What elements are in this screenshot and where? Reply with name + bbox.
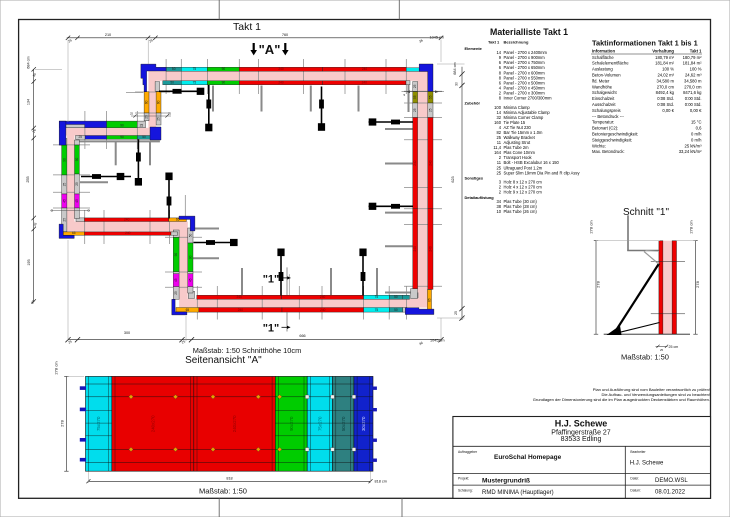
svg-text:--- Betondruck ---: --- Betondruck ---: [592, 114, 624, 119]
svg-text:25: 25: [168, 112, 171, 116]
svg-text:Taktinformationen Takt 1 bis: Taktinformationen Takt 1 bis 1: [592, 39, 698, 48]
svg-text:270,0 cm: 270,0 cm: [684, 84, 702, 89]
svg-text:278 cm: 278 cm: [589, 220, 594, 234]
svg-text:Takt 1: Takt 1: [690, 49, 702, 54]
svg-text:270,0 cm: 270,0 cm: [657, 84, 675, 89]
svg-text:50: 50: [394, 308, 398, 312]
svg-text:240: 240: [320, 295, 326, 299]
svg-text:Max. Betondruck:: Max. Betondruck:: [592, 149, 625, 154]
svg-text:90: 90: [222, 81, 226, 85]
svg-text:278 cm: 278 cm: [688, 220, 693, 234]
svg-text:45: 45: [75, 199, 79, 203]
svg-text:Schalgewicht: Schalgewicht: [592, 90, 618, 95]
svg-text:0,00 €: 0,00 €: [662, 108, 674, 113]
svg-text:0:08 Std.: 0:08 Std.: [657, 102, 674, 107]
svg-text:181,84 m²: 181,84 m²: [683, 61, 702, 66]
svg-text:33,24 kN/m²: 33,24 kN/m²: [679, 149, 702, 154]
svg-text:180,79 m²: 180,79 m²: [655, 55, 674, 60]
svg-text:50: 50: [170, 81, 174, 85]
svg-text:Bearbeiter: Bearbeiter: [630, 450, 646, 454]
svg-text:25: 25: [413, 108, 417, 112]
svg-text:Holz 9 x 12 x 270 cm: Holz 9 x 12 x 270 cm: [504, 190, 543, 195]
svg-text:0:00 Std.: 0:00 Std.: [685, 102, 702, 107]
svg-text:240: 240: [237, 295, 243, 299]
svg-text:818 cm: 818 cm: [375, 480, 387, 484]
svg-text:210: 210: [105, 33, 111, 37]
svg-text:25: 25: [130, 112, 133, 116]
svg-text:25: 25: [428, 108, 432, 112]
svg-text:240: 240: [413, 246, 417, 252]
svg-text:50x270: 50x270: [341, 416, 346, 431]
svg-text:278: 278: [60, 419, 65, 426]
svg-text:H.J. Schewe: H.J. Schewe: [555, 419, 608, 429]
svg-text:623: 623: [451, 176, 455, 182]
svg-text:60: 60: [145, 100, 149, 104]
svg-text:90: 90: [62, 158, 66, 162]
svg-text:278: 278: [695, 280, 700, 287]
svg-text:90x270: 90x270: [289, 416, 294, 431]
svg-text:Inner Corner 2700/300mm: Inner Corner 2700/300mm: [504, 96, 553, 101]
svg-text:1045 cm: 1045 cm: [430, 35, 445, 39]
svg-text:240: 240: [428, 160, 432, 166]
svg-text:60: 60: [157, 100, 161, 104]
svg-text:25: 25: [75, 182, 79, 186]
svg-text:1045 cm: 1045 cm: [430, 338, 445, 342]
svg-text:90: 90: [188, 255, 192, 259]
svg-text:25: 25: [660, 348, 664, 352]
svg-text:255: 255: [26, 176, 30, 182]
svg-text:75: 75: [375, 308, 379, 312]
svg-text:100 %: 100 %: [690, 67, 702, 72]
svg-text:278: 278: [596, 280, 601, 287]
svg-text:25: 25: [140, 124, 144, 128]
svg-text:240: 240: [362, 67, 368, 71]
svg-text:Maßstab: 1:50 Schnitthöhe 10: Maßstab: 1:50 Schnitthöhe 10cm: [193, 346, 301, 355]
svg-text:24,02 m³: 24,02 m³: [657, 73, 674, 78]
svg-text:Elemente: Elemente: [465, 46, 483, 51]
svg-text:0,6: 0,6: [696, 126, 702, 131]
svg-text:Vorhaltung: Vorhaltung: [652, 49, 674, 54]
svg-text:Wichte:: Wichte:: [592, 143, 606, 148]
svg-text:240: 240: [413, 160, 417, 166]
svg-text:Schnitt "1": Schnitt "1": [623, 207, 669, 218]
svg-text:45: 45: [174, 278, 178, 282]
svg-text:0:00 Std.: 0:00 Std.: [685, 96, 702, 101]
svg-text:"A": "A": [259, 42, 281, 57]
svg-text:50: 50: [172, 67, 176, 71]
svg-text:684 cm: 684 cm: [27, 56, 31, 68]
svg-text:134: 134: [27, 99, 31, 105]
svg-text:30: 30: [455, 82, 459, 86]
svg-text:75x270: 75x270: [96, 416, 101, 431]
svg-text:240: 240: [428, 246, 432, 252]
svg-text:Auslastung: Auslastung: [592, 67, 613, 72]
svg-text:181,84 m²: 181,84 m²: [655, 61, 674, 66]
svg-text:25 cm: 25 cm: [669, 345, 679, 349]
svg-text:25: 25: [62, 183, 66, 187]
svg-text:90: 90: [120, 124, 124, 128]
svg-text:818: 818: [226, 477, 232, 481]
svg-text:0,00 €: 0,00 €: [690, 108, 702, 113]
svg-text:25: 25: [454, 311, 458, 315]
svg-text:Datum:: Datum:: [630, 488, 641, 492]
svg-text:25: 25: [79, 135, 83, 139]
svg-text:90: 90: [174, 253, 178, 257]
svg-text:75: 75: [375, 295, 379, 299]
svg-text:55: 55: [413, 95, 417, 99]
svg-text:25: 25: [413, 84, 417, 88]
svg-text:15 °C: 15 °C: [691, 120, 702, 125]
svg-text:Grundlagen der Dimensionierung: Grundlagen der Dimensionierung sind die …: [533, 397, 710, 402]
svg-text:Temperatur:: Temperatur:: [592, 120, 614, 125]
svg-text:760: 760: [282, 33, 288, 37]
svg-text:Datei:: Datei:: [630, 477, 639, 481]
svg-text:0 m/h: 0 m/h: [691, 132, 702, 137]
svg-text:Wandhöhe: Wandhöhe: [592, 84, 613, 89]
svg-text:50: 50: [188, 234, 192, 238]
svg-text:DEMO.WSL: DEMO.WSL: [655, 478, 688, 484]
svg-text:Ausschalzeit: Ausschalzeit: [592, 102, 616, 107]
svg-text:lfd. Meter: lfd. Meter: [592, 78, 610, 83]
svg-text:Schalungspreis: Schalungspreis: [592, 108, 621, 113]
svg-text:0:08 Std.: 0:08 Std.: [657, 96, 674, 101]
svg-text:RMD MINIMA (Hauptlager): RMD MINIMA (Hauptlager): [482, 490, 554, 496]
svg-text:90: 90: [120, 135, 124, 139]
svg-text:240: 240: [362, 81, 368, 85]
svg-text:34,580 m: 34,580 m: [657, 78, 675, 83]
svg-text:Maßstab: 1:50: Maßstab: 1:50: [199, 487, 247, 496]
svg-text:240x270: 240x270: [232, 415, 237, 432]
svg-text:25: 25: [62, 218, 66, 222]
svg-text:08.01.2022: 08.01.2022: [655, 490, 686, 496]
svg-text:Einschalzeit: Einschalzeit: [592, 96, 615, 101]
svg-text:Projekt:: Projekt:: [458, 477, 469, 481]
svg-text:65: 65: [72, 231, 76, 235]
svg-text:25 kN/m³: 25 kN/m³: [685, 143, 703, 148]
svg-text:240: 240: [124, 217, 130, 221]
svg-text:100 %: 100 %: [662, 67, 674, 72]
svg-text:Auftraggeber: Auftraggeber: [458, 450, 478, 454]
svg-text:8471,6 kg: 8471,6 kg: [683, 90, 702, 95]
svg-text:"1": "1": [263, 274, 280, 286]
svg-text:45: 45: [62, 199, 66, 203]
svg-text:300: 300: [124, 331, 130, 335]
svg-text:50: 50: [394, 295, 398, 299]
svg-text:8492,4 kg: 8492,4 kg: [656, 90, 675, 95]
svg-text:Super Slim 19mm Dia Pin and R: Super Slim 19mm Dia Pin and R clip Assy: [504, 170, 581, 175]
svg-text:666: 666: [299, 334, 305, 338]
svg-text:55: 55: [428, 95, 432, 99]
svg-text:Betoniergeschwindigkeit:: Betoniergeschwindigkeit:: [592, 132, 638, 137]
svg-text:50: 50: [142, 135, 146, 139]
svg-text:684 cm: 684 cm: [453, 62, 457, 74]
svg-text:0 m/h: 0 m/h: [691, 137, 702, 142]
svg-text:25: 25: [174, 291, 178, 295]
svg-text:Bezeichnung: Bezeichnung: [504, 40, 529, 45]
svg-text:Plas Tube (26 cm): Plas Tube (26 cm): [504, 209, 538, 214]
svg-text:Materialliste Takt 1: Materialliste Takt 1: [490, 27, 568, 37]
svg-text:75: 75: [193, 81, 197, 85]
svg-text:240: 240: [320, 308, 326, 312]
svg-text:Takt 1: Takt 1: [233, 21, 261, 33]
svg-text:240: 240: [278, 67, 284, 71]
svg-text:90: 90: [222, 67, 226, 71]
svg-text:90: 90: [75, 158, 79, 162]
svg-text:Beton-Volumen: Beton-Volumen: [592, 73, 621, 78]
svg-text:240x270: 240x270: [150, 415, 155, 432]
svg-text:180,79 m²: 180,79 m²: [683, 55, 702, 60]
svg-text:"1": "1": [263, 323, 280, 335]
svg-text:Mustergrundriß: Mustergrundriß: [482, 477, 530, 484]
svg-text:Steiggeschwindigkeit:: Steiggeschwindigkeit:: [592, 137, 632, 142]
svg-text:25: 25: [157, 117, 161, 121]
svg-text:EuroSchal Homepage: EuroSchal Homepage: [494, 454, 562, 461]
svg-text:Takt 1: Takt 1: [488, 40, 500, 45]
svg-text:240: 240: [278, 81, 284, 85]
svg-text:34,580 m: 34,580 m: [684, 78, 702, 83]
svg-text:H.J. Schewe: H.J. Schewe: [630, 461, 664, 467]
svg-text:75x270: 75x270: [317, 416, 322, 431]
svg-text:10: 10: [496, 209, 501, 214]
svg-text:Zubehör: Zubehör: [465, 101, 481, 106]
svg-text:30x270: 30x270: [361, 416, 366, 431]
svg-text:195: 195: [27, 259, 31, 265]
svg-text:Information: Information: [592, 49, 615, 54]
svg-text:83533 Edling: 83533 Edling: [561, 436, 602, 443]
svg-text:25: 25: [145, 115, 149, 119]
svg-text:65: 65: [186, 308, 190, 312]
svg-text:Maßstab: 1:50: Maßstab: 1:50: [621, 353, 669, 362]
svg-text:240: 240: [238, 308, 244, 312]
svg-text:278 cm: 278 cm: [54, 361, 59, 375]
svg-text:Detailauflistung: Detailauflistung: [465, 195, 495, 200]
svg-text:Schalfläche: Schalfläche: [592, 55, 614, 60]
svg-text:Betonart (C2):: Betonart (C2):: [592, 126, 618, 131]
svg-text:Schalelementfläche: Schalelementfläche: [592, 61, 629, 66]
svg-text:25: 25: [496, 170, 501, 175]
svg-text:75: 75: [193, 67, 197, 71]
svg-text:Seitenansicht "A": Seitenansicht "A": [185, 355, 262, 366]
svg-text:65: 65: [428, 298, 432, 302]
svg-text:Sonstiges: Sonstiges: [465, 175, 484, 180]
svg-text:240: 240: [125, 231, 131, 235]
svg-text:Schalung:: Schalung:: [458, 488, 473, 492]
svg-text:24,62 m³: 24,62 m³: [685, 73, 702, 78]
svg-text:45: 45: [188, 278, 192, 282]
